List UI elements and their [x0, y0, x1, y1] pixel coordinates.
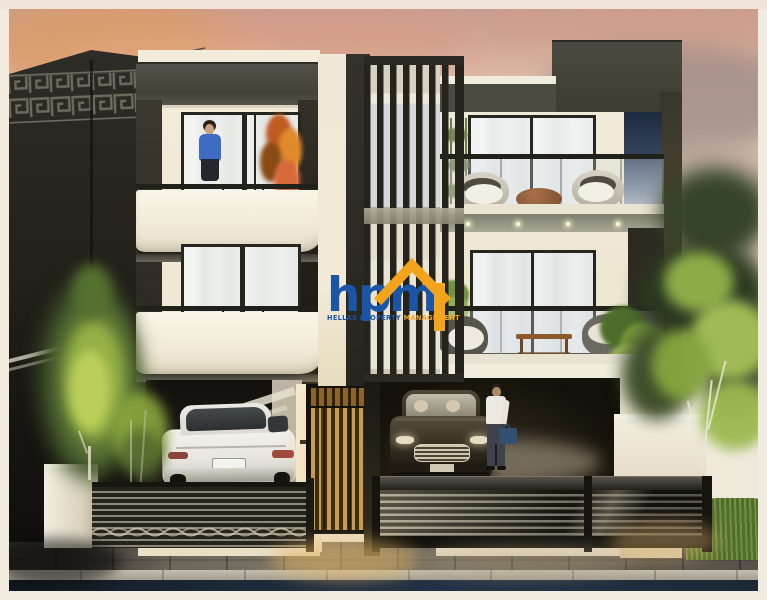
right-wall-glow: [610, 520, 720, 560]
chair-cushion: [578, 182, 614, 202]
wooden-slat-door: [311, 408, 371, 530]
recessed-light: [566, 222, 570, 226]
door-dark-slat: [348, 408, 352, 530]
recessed-light: [616, 222, 620, 226]
louvre-bottom-beam: [364, 374, 464, 382]
door-transom: [311, 388, 371, 406]
table-top: [516, 334, 572, 339]
balcony-railing-top: [136, 184, 322, 189]
tree-trunk: [88, 446, 91, 480]
tall-tree-foliage: [70, 350, 110, 430]
glass-joint: [500, 311, 502, 356]
hpm-logo-text: hpm: [327, 272, 436, 319]
car-seat: [446, 400, 460, 412]
fence-wave-ornament: [92, 524, 308, 546]
businessman: [484, 382, 518, 472]
left-house-parapet-band: [136, 62, 318, 108]
man-leg-gap: [495, 444, 497, 466]
hpm-logo-tagline: HELLAS PROPERTY MANAGEMENT: [327, 314, 460, 322]
white-car-taillight-right: [272, 450, 294, 458]
man-shoe: [497, 466, 506, 470]
recessed-light: [466, 222, 470, 226]
dark-sedan-headlight-left: [396, 436, 414, 444]
road: [0, 580, 767, 600]
dark-sedan-hood-line: [396, 418, 486, 421]
car-seat: [414, 400, 428, 412]
louvre-top-beam: [364, 56, 464, 65]
tall-tree-tip: [72, 264, 112, 318]
louvre-mid-bracket-band: [364, 208, 464, 224]
tagline-hellas-property: HELLAS PROPERTY: [327, 314, 404, 322]
briefcase: [499, 428, 517, 444]
balcony-railing-mid: [136, 306, 322, 311]
greek-key-frieze: [7, 67, 147, 125]
dark-sedan-grille: [414, 444, 470, 462]
woman-blue-top: [199, 134, 221, 161]
white-car-side-glass: [267, 415, 288, 432]
balcony-parapet-mid: [136, 312, 322, 378]
garage-light-spill: [420, 544, 640, 578]
white-car-rear-glass: [186, 407, 267, 432]
white-car-taillight-left: [168, 452, 188, 459]
right-fence-top-rail: [372, 476, 712, 490]
bright-tree-canopy: [652, 330, 712, 400]
photo-border-top-tint: [0, 0, 767, 9]
tagline-management: MANAGEMENT: [404, 314, 460, 322]
man-shoe: [486, 466, 495, 470]
thin-trunk: [130, 420, 132, 490]
chair-cushion: [465, 184, 503, 204]
entrance-light-pool: [270, 540, 420, 580]
woman-skirt: [201, 159, 219, 181]
recessed-light: [516, 222, 520, 226]
fence-post: [584, 476, 592, 552]
door-dark-slat: [321, 408, 325, 530]
architectural-render-photo: hpm HELLAS PROPERTY MANAGEMENT: [0, 0, 767, 600]
